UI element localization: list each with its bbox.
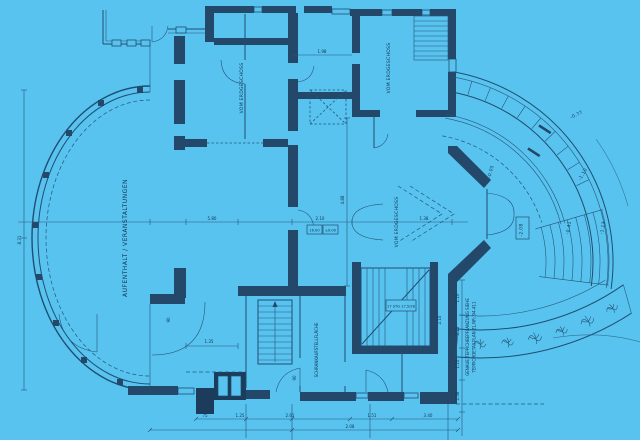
dim-text: 90 <box>292 375 297 381</box>
note-teppich-line1: GENAUE TEPPICHBEPFLANZUNG SIEHE <box>465 298 470 376</box>
dim-text: 4.88 <box>340 195 345 204</box>
note-teppich-line2: TEPPICHDETAILPLAN ZL.NR: 94-411 <box>472 301 477 374</box>
dim-text: 1.98 <box>318 49 327 54</box>
elevation-208: -2.08 <box>519 223 525 236</box>
room-label-aufenthalt: AUFENTHALT / VERANSTALTUNGEN <box>122 179 129 297</box>
stair-count-label: 17 STG 17,5/28 <box>387 305 416 309</box>
room-label-schrank: SCHRANKAUFSTELLFLÄCHE <box>314 322 319 377</box>
dim-text: 1.38 <box>420 216 429 221</box>
dim-text: 2.10 <box>437 315 442 324</box>
dim-text: 2.38 <box>455 326 460 335</box>
dim-text: 1.25 <box>236 413 245 418</box>
dim-text: 75 <box>202 413 208 418</box>
room-label-vom-erdgeschoss-1: VOM ERDGESCHOSS <box>239 63 245 114</box>
dim-text: 3.40 <box>424 413 433 418</box>
dim-text: 2.61 <box>286 413 295 418</box>
dim-text: 8.31 <box>17 235 22 244</box>
room-label-vom-erdgeschoss-2: VOM ERDGESCHOSS <box>386 43 392 94</box>
dim-text: 1.35 <box>205 339 214 344</box>
dim-text: 90 <box>166 317 171 323</box>
dim-text: 2.38 <box>455 391 460 400</box>
dim-text: 2.10 <box>316 216 325 221</box>
room-label-vom-erdgeschoss-3: VOM ERDGESCHOSS <box>394 197 400 248</box>
level-box-value: 16.00 <box>309 229 320 233</box>
dim-text: 5.80 <box>208 216 217 221</box>
dim-text: 1.10 <box>455 359 460 368</box>
dim-text: 1.10 <box>455 293 460 302</box>
dim-text: 2.08 <box>346 424 355 429</box>
dim-text: 1.51 <box>368 413 377 418</box>
level-box-value: ±0.00 <box>325 229 337 233</box>
floor-plan-blueprint: 17 STG 17,5/28 <box>0 0 640 440</box>
